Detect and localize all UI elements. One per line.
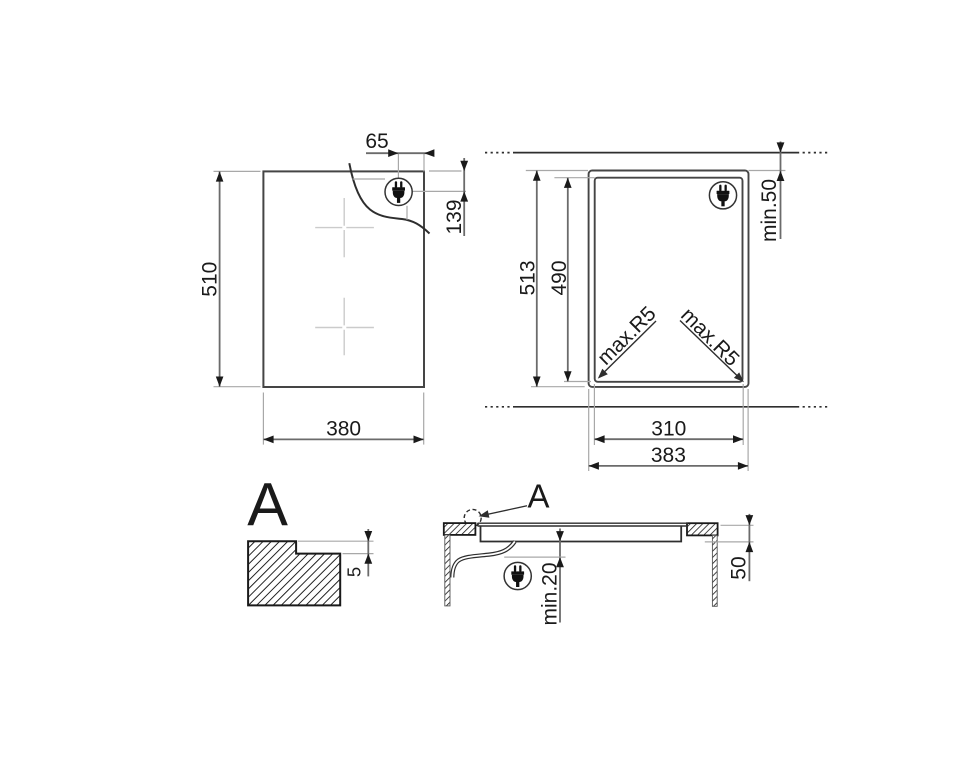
svg-text:A: A xyxy=(527,477,549,514)
svg-text:min.20: min.20 xyxy=(539,562,562,625)
svg-text:min.50: min.50 xyxy=(758,179,781,242)
svg-text:50: 50 xyxy=(727,556,750,579)
svg-text:380: 380 xyxy=(326,418,361,441)
svg-text:510: 510 xyxy=(199,262,222,297)
svg-text:A: A xyxy=(247,471,288,539)
svg-text:383: 383 xyxy=(651,444,686,467)
svg-text:5: 5 xyxy=(344,567,365,577)
svg-text:513: 513 xyxy=(517,260,540,295)
svg-text:310: 310 xyxy=(651,417,686,440)
svg-text:490: 490 xyxy=(548,260,571,295)
svg-text:65: 65 xyxy=(365,130,388,153)
svg-text:139: 139 xyxy=(443,199,466,234)
